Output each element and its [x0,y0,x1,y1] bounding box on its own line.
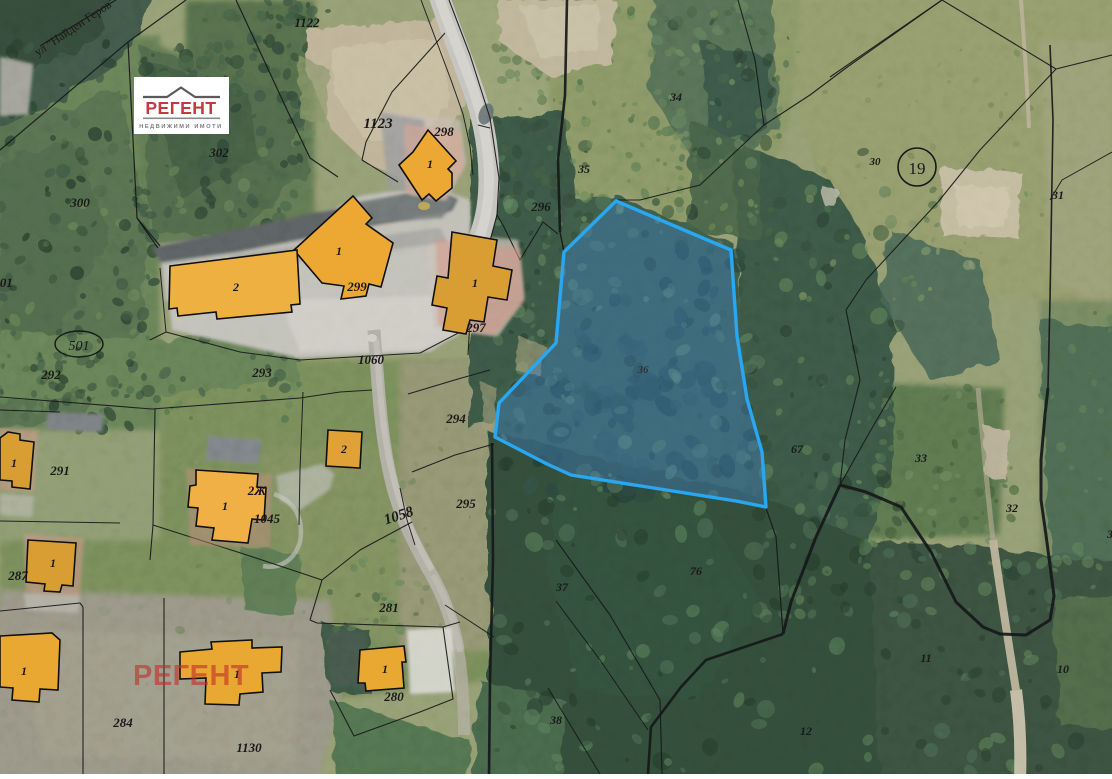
svg-text:1: 1 [336,244,342,258]
svg-text:1060: 1060 [358,352,385,367]
svg-text:1045: 1045 [254,511,281,526]
svg-text:76: 76 [690,564,702,578]
svg-text:3: 3 [1106,527,1112,541]
svg-text:36: 36 [637,364,650,376]
svg-text:12: 12 [800,724,812,738]
svg-text:РЕГЕНТ: РЕГЕНТ [145,98,216,118]
svg-text:1130: 1130 [236,740,262,755]
svg-text:67: 67 [791,442,804,456]
svg-text:293: 293 [251,365,272,380]
svg-text:292: 292 [40,367,61,382]
svg-text:1: 1 [11,456,17,470]
svg-text:2: 2 [340,442,347,456]
svg-text:1: 1 [21,664,27,678]
svg-text:298: 298 [433,124,454,139]
svg-text:302: 302 [208,145,229,160]
svg-text:19: 19 [909,159,926,178]
svg-text:37: 37 [555,580,569,594]
svg-text:2: 2 [232,280,239,294]
svg-text:301: 301 [0,275,13,290]
svg-text:294: 294 [445,411,466,426]
svg-text:38: 38 [549,713,562,727]
svg-text:2Ж: 2Ж [247,483,268,498]
svg-text:1: 1 [427,157,433,171]
svg-text:РЕГЕНТ: РЕГЕНТ [133,660,249,692]
svg-text:1: 1 [50,556,56,570]
svg-text:295: 295 [455,496,476,511]
svg-text:1: 1 [382,662,388,676]
svg-text:287: 287 [7,568,28,583]
svg-text:297: 297 [465,320,486,335]
svg-text:1: 1 [222,499,228,513]
svg-text:1: 1 [472,276,478,290]
svg-text:501: 501 [69,339,90,354]
svg-text:291: 291 [49,463,70,478]
svg-text:35: 35 [577,162,590,176]
svg-text:34: 34 [669,90,682,104]
svg-text:32: 32 [1005,501,1018,515]
svg-text:10: 10 [1057,662,1069,676]
svg-text:300: 300 [69,195,90,210]
svg-text:296: 296 [530,199,551,214]
svg-text:30: 30 [869,156,882,168]
svg-text:31: 31 [1051,188,1064,202]
svg-text:280: 280 [383,689,404,704]
svg-text:11: 11 [920,651,931,665]
svg-text:1123: 1123 [363,116,393,132]
svg-text:281: 281 [378,600,399,615]
svg-text:НЕДВИЖИМИ ИМОТИ: НЕДВИЖИМИ ИМОТИ [139,124,223,130]
svg-text:1122: 1122 [294,15,320,30]
svg-text:299: 299 [346,279,367,294]
svg-text:33: 33 [914,451,927,465]
svg-text:284: 284 [112,715,133,730]
